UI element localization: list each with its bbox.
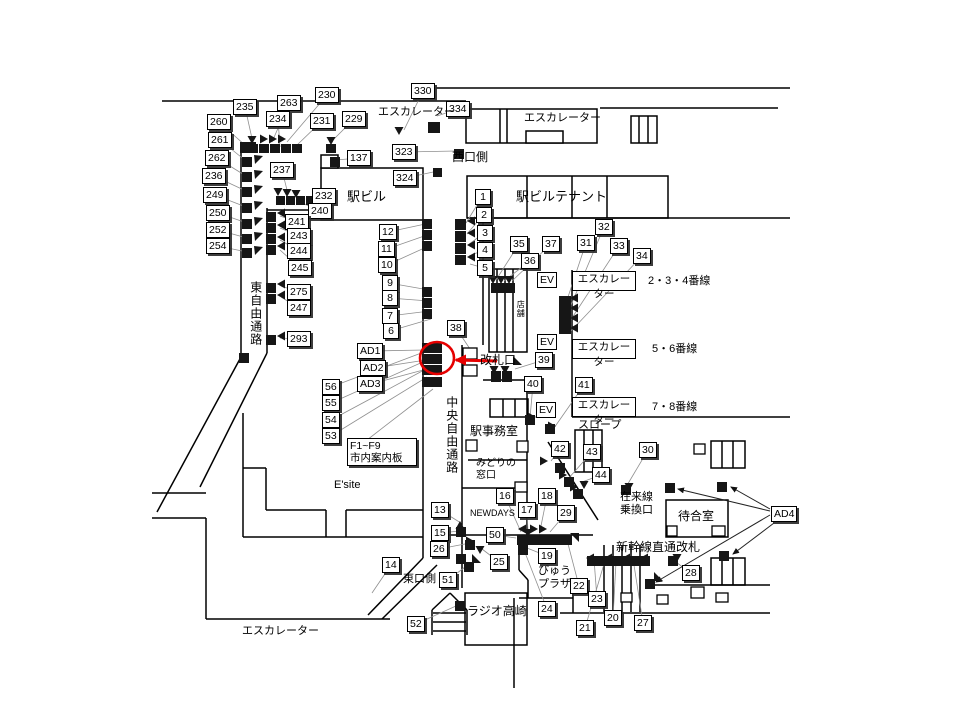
number-box-43: 43	[583, 444, 601, 460]
area-label-待合室: 待合室	[678, 510, 714, 524]
number-box-7: 7	[382, 308, 398, 324]
direction-triangle-marker	[254, 246, 263, 255]
position-marker-square	[242, 219, 252, 229]
area-label-駅ビル: 駅ビル	[347, 190, 386, 205]
area-label-在来線乗換口: 在来線 乗換口	[620, 491, 653, 516]
number-box-34: 34	[633, 248, 651, 264]
position-marker-square	[507, 283, 515, 293]
number-box-35: 35	[510, 236, 528, 252]
position-marker-square	[433, 168, 442, 177]
position-marker-square	[242, 203, 252, 213]
number-box-EV: EV	[537, 334, 557, 350]
direction-triangle-marker	[277, 242, 285, 251]
building-outline	[711, 441, 745, 468]
gate-square	[657, 595, 668, 604]
number-box-10: 10	[378, 257, 396, 273]
number-box-36: 36	[521, 253, 539, 269]
number-box-252: 252	[206, 222, 230, 238]
position-marker-square	[632, 556, 641, 566]
position-marker-square	[422, 309, 432, 319]
number-box-40: 40	[524, 376, 542, 392]
position-marker-square	[422, 354, 432, 364]
number-box-37: 37	[542, 236, 560, 252]
station-floor-map: 2352632303303342342312292602612622362492…	[0, 0, 960, 720]
gate-square	[466, 440, 477, 451]
number-box-39: 39	[535, 352, 553, 368]
number-box-20: 20	[604, 610, 622, 626]
direction-triangle-marker	[467, 253, 475, 262]
number-box-41: 41	[575, 377, 593, 393]
number-box-23: 23	[588, 591, 606, 607]
number-box-324: 324	[393, 170, 417, 186]
number-box-AD4: AD4	[771, 506, 797, 522]
direction-triangle-marker	[254, 201, 263, 210]
area-label-駅事務室: 駅事務室	[470, 425, 518, 439]
number-box-263: 263	[277, 95, 301, 111]
area-label-びゅうプラザ: びゅう プラザ	[538, 565, 571, 590]
number-box-243: 243	[287, 228, 311, 244]
direction-triangle-marker	[327, 137, 336, 145]
number-box-53: 53	[322, 428, 340, 444]
position-marker-square	[544, 535, 553, 545]
position-marker-square	[242, 157, 252, 167]
area-label-5・6番線: 5・6番線	[652, 343, 697, 356]
number-box-26: 26	[430, 541, 448, 557]
position-marker-square	[286, 196, 295, 205]
number-box-232: 232	[312, 188, 336, 204]
position-marker-square	[422, 377, 432, 387]
position-marker-square	[491, 371, 501, 382]
area-label-東自由通路: 東自由通路	[248, 281, 262, 346]
direction-triangle-marker	[254, 232, 263, 241]
number-box-24: 24	[538, 601, 556, 617]
number-box-137: 137	[347, 150, 371, 166]
area-label-新幹線直通改札: 新幹線直通改札	[616, 541, 700, 555]
number-box-12: 12	[379, 224, 397, 240]
number-box-250: 250	[206, 205, 230, 221]
area-label-エスカレーター: エスカレーター	[242, 625, 319, 638]
number-box-234: 234	[266, 111, 290, 127]
position-marker-square	[502, 371, 512, 382]
number-box-16: 16	[496, 488, 514, 504]
number-box-14: 14	[382, 557, 400, 573]
area-label-7・8番線: 7・8番線	[652, 401, 697, 414]
position-marker-square	[422, 241, 432, 251]
escalator-label-box: エスカレーター	[572, 397, 636, 417]
gate-square	[515, 482, 527, 492]
area-label-エスカレーター: エスカレーター	[524, 112, 601, 125]
number-box-260: 260	[207, 114, 231, 130]
area-label-エスカレーター: エスカレーター	[378, 106, 455, 119]
number-box-2: 2	[476, 207, 492, 223]
number-box-17: 17	[518, 502, 536, 518]
position-marker-square	[665, 483, 675, 493]
direction-triangle-marker	[395, 127, 404, 135]
direction-triangle-marker	[254, 185, 263, 194]
number-box-11: 11	[378, 241, 395, 257]
wall-line	[519, 570, 528, 580]
position-marker-square	[432, 377, 442, 387]
number-box-247: 247	[287, 300, 311, 316]
area-label-西口側: 西口側	[452, 151, 488, 165]
area-label-2・3・4番線: 2・3・4番線	[648, 275, 710, 288]
number-box-EV: EV	[536, 402, 556, 418]
direction-triangle-marker	[260, 135, 268, 144]
number-box-3: 3	[477, 225, 493, 241]
number-box-25: 25	[490, 554, 508, 570]
direction-triangle-marker	[539, 525, 547, 534]
position-marker-square	[266, 223, 276, 233]
gate-square	[463, 365, 477, 376]
position-marker-square	[719, 551, 729, 561]
number-box-13: 13	[431, 502, 449, 518]
position-marker-square	[292, 144, 302, 153]
position-marker-square	[281, 144, 291, 153]
number-box-236: 236	[202, 168, 226, 184]
number-box-27: 27	[634, 615, 652, 631]
position-marker-square	[645, 579, 655, 589]
number-box-AD3: AD3	[357, 376, 383, 392]
number-box-54: 54	[322, 412, 340, 428]
number-box-235: 235	[233, 99, 257, 115]
number-box-275: 275	[287, 284, 311, 300]
number-box-15: 15	[431, 525, 449, 541]
ad4-pointer-arrow	[733, 523, 774, 554]
area-label-ラジオ高崎: ラジオ高崎	[467, 605, 527, 619]
position-marker-square	[455, 255, 466, 265]
building-outline	[490, 399, 528, 417]
number-box-323: 323	[392, 144, 416, 160]
number-box-244: 244	[287, 243, 311, 259]
area-label-東口側: 東口側	[403, 573, 436, 586]
position-marker-square	[276, 196, 285, 205]
number-box-6: 6	[383, 323, 399, 339]
position-marker-square	[518, 545, 528, 555]
number-box-261: 261	[208, 132, 232, 148]
building-outline	[526, 131, 563, 143]
number-box-19: 19	[538, 548, 556, 564]
number-box-44: 44	[592, 467, 610, 483]
gate-square	[667, 526, 677, 536]
area-label-スロープ: スロープ	[578, 419, 621, 432]
position-marker-square	[559, 296, 571, 334]
direction-triangle-marker	[277, 291, 285, 300]
number-box-50: 50	[486, 527, 504, 543]
number-box-AD1: AD1	[357, 343, 383, 359]
highlight-arrow-head	[454, 355, 466, 366]
position-marker-square	[573, 489, 583, 499]
area-label-店舗: 店舗	[516, 300, 525, 318]
position-marker-square	[242, 172, 252, 182]
position-marker-square	[717, 482, 727, 492]
gate-square	[517, 441, 528, 452]
wall-line	[157, 357, 241, 512]
position-marker-square	[422, 230, 432, 240]
position-marker-square	[428, 122, 440, 133]
position-marker-square	[455, 243, 466, 254]
number-box-31: 31	[577, 235, 595, 251]
escalator-label-box: エスカレーター	[572, 339, 636, 359]
direction-triangle-marker	[530, 525, 538, 534]
number-box-22: 22	[570, 578, 588, 594]
number-box-42: 42	[551, 441, 569, 457]
position-marker-square	[455, 231, 466, 242]
position-marker-square	[296, 196, 305, 205]
number-box-4: 4	[477, 242, 493, 258]
area-label-NEWDAYS: NEWDAYS	[470, 508, 515, 518]
direction-triangle-marker	[472, 554, 481, 563]
number-box-51: 51	[439, 572, 457, 588]
gate-square	[694, 444, 705, 454]
direction-triangle-marker	[654, 572, 663, 581]
position-marker-square	[596, 556, 605, 566]
number-box-245: 245	[288, 260, 312, 276]
direction-triangle-marker	[278, 135, 286, 144]
gate-square	[712, 526, 725, 536]
number-box-230: 230	[315, 87, 339, 103]
number-box-55: 55	[322, 395, 340, 411]
direction-triangle-marker	[254, 217, 263, 226]
direction-triangle-marker	[254, 170, 263, 179]
number-box-33: 33	[610, 238, 628, 254]
direction-triangle-marker	[277, 280, 285, 289]
direction-triangle-marker	[269, 135, 277, 144]
direction-triangle-marker	[456, 521, 465, 529]
position-marker-square	[239, 353, 249, 363]
number-box-231: 231	[310, 113, 334, 129]
position-marker-square	[464, 562, 474, 572]
position-marker-square	[422, 219, 432, 229]
number-box-52: 52	[407, 616, 425, 632]
position-marker-square	[499, 283, 507, 293]
gate-square	[691, 587, 704, 598]
direction-triangle-marker	[570, 294, 578, 303]
number-box-1: 1	[475, 189, 491, 205]
building-outline	[711, 558, 745, 585]
area-label-E'site: E'site	[334, 479, 361, 492]
number-box-21: 21	[576, 620, 594, 636]
position-marker-square	[535, 535, 544, 545]
area-label-中央自由通路: 中央自由通路	[444, 396, 458, 474]
position-marker-square	[266, 335, 276, 345]
number-box-AD2: AD2	[360, 360, 386, 376]
area-label-改札口: 改札口	[480, 354, 516, 368]
position-marker-square	[526, 535, 535, 545]
area-label-みどりの窓口: みどりの 窓口	[476, 458, 516, 481]
direction-triangle-marker	[274, 188, 283, 196]
position-marker-square	[259, 144, 269, 153]
number-box-237: 237	[270, 162, 294, 178]
number-box-56: 56	[322, 379, 340, 395]
position-marker-square	[242, 248, 252, 258]
wall-line	[432, 593, 450, 610]
direction-triangle-marker	[254, 155, 263, 164]
number-box-9: 9	[382, 275, 398, 291]
number-box-254: 254	[206, 238, 230, 254]
position-marker-square	[614, 556, 623, 566]
building-outline	[631, 116, 657, 143]
number-box-29: 29	[557, 505, 575, 521]
number-box-5: 5	[477, 260, 493, 276]
ad4-pointer-arrow	[731, 487, 770, 509]
position-marker-square	[562, 535, 572, 545]
number-box-8: 8	[382, 290, 398, 306]
position-marker-square	[432, 354, 442, 364]
number-box-240: 240	[308, 203, 332, 219]
number-box-32: 32	[595, 219, 613, 235]
direction-triangle-marker	[540, 457, 548, 466]
position-marker-square	[270, 144, 280, 153]
position-marker-square	[242, 187, 252, 197]
gate-square	[716, 593, 728, 602]
position-marker-square	[422, 298, 432, 308]
number-box-28: 28	[682, 565, 700, 581]
number-box-249: 249	[203, 187, 227, 203]
position-marker-square	[491, 283, 499, 293]
direction-triangle-marker	[277, 332, 285, 341]
position-marker-square	[266, 283, 276, 293]
position-marker-square	[455, 601, 465, 611]
number-box-262: 262	[205, 150, 229, 166]
direction-triangle-marker	[467, 241, 475, 250]
direction-triangle-marker	[580, 481, 589, 489]
area-label-駅ビルテナント: 駅ビルテナント	[516, 190, 607, 205]
number-box-EV: EV	[537, 272, 557, 288]
position-marker-square	[517, 535, 526, 545]
position-marker-square	[248, 144, 258, 153]
gate-square	[621, 593, 632, 602]
number-box-38: 38	[447, 320, 465, 336]
position-marker-square	[330, 157, 340, 167]
number-box-293: 293	[287, 331, 311, 347]
number-box-330: 330	[411, 83, 435, 99]
position-marker-square	[432, 343, 442, 353]
escalator-label-box: エスカレーター	[572, 271, 636, 291]
direction-triangle-marker	[283, 189, 292, 197]
number-box-229: 229	[342, 111, 366, 127]
number-box-18: 18	[538, 488, 556, 504]
position-marker-square	[422, 287, 432, 297]
position-marker-square	[266, 294, 276, 304]
position-marker-square	[266, 245, 276, 255]
building-outline	[465, 593, 527, 645]
city-info-board-box: F1~F9 市内案内板	[347, 438, 417, 466]
position-marker-square	[242, 234, 252, 244]
position-marker-square	[266, 212, 276, 222]
number-box-30: 30	[639, 442, 657, 458]
position-marker-square	[455, 219, 466, 230]
position-marker-square	[326, 144, 336, 153]
position-marker-square	[266, 234, 276, 244]
position-marker-square	[553, 535, 562, 545]
wall-line	[200, 353, 267, 487]
